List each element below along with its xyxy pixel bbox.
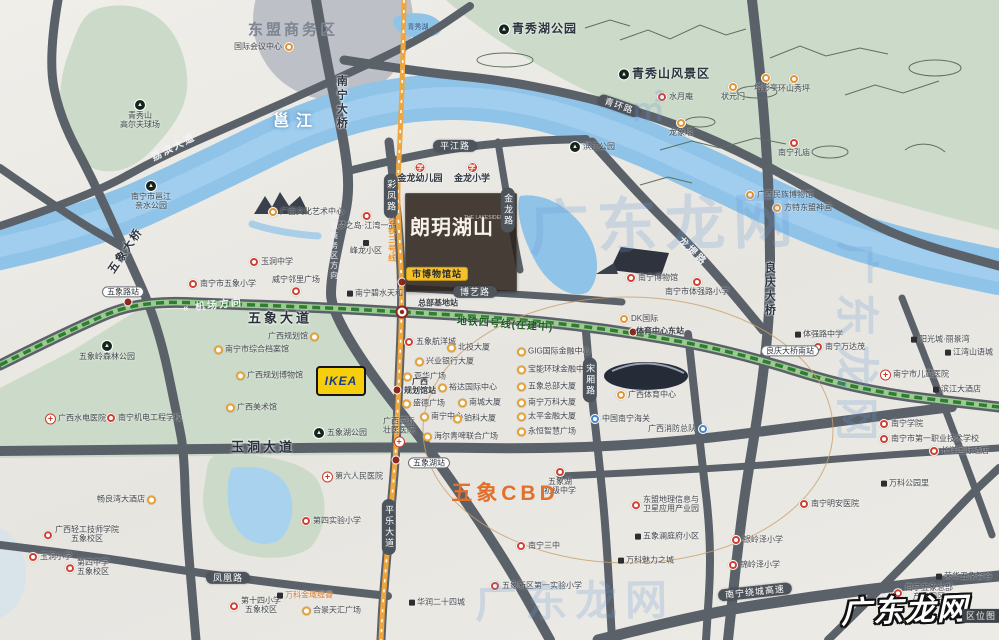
poi-intl-convention-center: 国际会议中心 (234, 42, 294, 52)
poi-label: 广西体育中心 (628, 391, 676, 400)
nanning-bridge-label: 南宁大桥 (335, 75, 348, 131)
poi-orange-icon (676, 118, 686, 128)
brand-logo: 广东龙网 (840, 593, 969, 632)
creek (252, 224, 318, 236)
poi-label: 威宁邻里广场 (272, 276, 320, 285)
poi-red-icon (879, 434, 889, 444)
poi-haier-tsingtao-plaza: 海尔青啤联合广场 (423, 433, 498, 442)
poi-vanke-park-li: 万科公园里 (881, 480, 929, 489)
poi-ring-icon (310, 333, 319, 342)
hospital-cross-icon: + (322, 472, 333, 483)
poi-label: 盛德广场 (413, 400, 445, 409)
poi-label: GIG国际金融中心 (528, 348, 591, 357)
poi-label: 锦岭泽小学 (740, 561, 780, 570)
poi-ring-icon (423, 433, 432, 442)
poi-changliangwan-hotel: 畅良湾大酒店 (97, 496, 156, 505)
wuxiang-road-station-label: 五象路站 (102, 286, 144, 297)
poi-red-icon (631, 500, 641, 510)
poi-jinlingze-primary: 锦岭泽小学 (728, 560, 780, 570)
poi-red-icon (229, 601, 239, 611)
poi-label: 南城大厦 (469, 399, 501, 408)
poi-label: 青秀山风景区 (632, 67, 710, 80)
poi-label: 合景天汇广场 (313, 607, 361, 616)
hospital-cross-icon: + (880, 370, 891, 381)
poi-changyang-intl-hotel: 长洋国际酒店 (929, 446, 989, 456)
poi-label: 状元门 (721, 93, 745, 102)
poi-label: 五象总部大厦 (528, 383, 576, 392)
poi-label: 体强路中学 (803, 331, 843, 340)
liangqing-south-station-label: 良庆大桥南站 (761, 345, 819, 356)
poi-yongheng-wisdom-plaza: 永恒智慧广场 (517, 428, 576, 437)
poi-red-icon (362, 211, 372, 221)
poi-label: 五象澜庭府小区 (643, 533, 699, 542)
poi-red-icon (490, 581, 500, 591)
poi-red-icon (731, 535, 741, 545)
poi-label: 广西规划馆 (268, 333, 308, 342)
poi-label: 南宁市体强路小学 (665, 288, 729, 297)
poi-ring-icon (517, 366, 526, 375)
poi-label: 江湾山语城 (953, 349, 993, 358)
ikea-store: IKEA (316, 366, 366, 396)
poi-label: 畅良湾大酒店 (97, 496, 145, 505)
poi-nanning-mech-engineering-school: 南宁机电工程学校 (106, 413, 182, 423)
poi-no4-middle-school-wuxiang: 第四中学五象校区 (65, 559, 109, 577)
poi-label: 第六人民医院 (335, 473, 383, 482)
poi-red-icon (28, 552, 38, 562)
park-tree-icon: ▲ (618, 68, 630, 80)
poi-label: DK国际 (631, 315, 658, 324)
poi-nanning-no3-middle-school: 南宁三中 (516, 541, 560, 551)
hospital-cross-icon: + (394, 436, 405, 447)
poi-dk-international: DK国际 (619, 314, 658, 324)
poi-label: 滨江大酒店 (941, 386, 981, 395)
poi-wuxiang-lake-park: ▲五象湖公园 (313, 427, 367, 439)
poi-qinxiu-lake-park: ▲青秀湖公园 (498, 22, 577, 35)
poi-wuxiang-lantingfu: 五象澜庭府小区 (635, 533, 699, 542)
poi-red-icon (692, 277, 702, 287)
poi-jinlong-primary-school: 学金龙小学 (454, 162, 490, 184)
poi-gx-light-industry-college: 广西轻工技师学院五象校区 (43, 526, 119, 544)
poi-nanning-wanda-mall: 南宁万达茂 (813, 342, 865, 352)
district-asean-label: 东盟商务区 (248, 21, 338, 38)
poi-ring-icon (420, 413, 429, 422)
asean-direction-label: 东盟商务区方向 (329, 211, 338, 281)
poi-nanning-children-hospital: +南宁市儿童医院 (880, 370, 949, 381)
poi-red-icon (657, 92, 667, 102)
residential-marker-icon (795, 332, 801, 338)
poi-label: 第十四小学五象校区 (241, 597, 281, 615)
poi-label: 万科公园里 (889, 480, 929, 489)
poi-label: 银岭泽小学 (743, 536, 783, 545)
poi-label: 南宁万达茂 (825, 343, 865, 352)
poi-asean-geo-satellite-park: 东盟地理信息与卫星应用产业园 (631, 496, 699, 514)
poi-label: 荣华五象智谷 (944, 573, 992, 582)
poi-red-icon (516, 541, 526, 551)
poi-ring-icon (226, 404, 235, 413)
park-tree-icon: ▲ (498, 23, 510, 35)
poi-red-icon (789, 138, 799, 148)
poi-nanning-museum: 南宁博物馆 (626, 273, 678, 283)
poi-golf-course: ▲青秀山高尔夫球场 (120, 99, 160, 130)
poi-ring-icon (517, 428, 526, 437)
poi-label: 广西水电医院 (58, 415, 106, 424)
poi-wuxiangling-forest-park: ▲五象岭森林公园 (79, 340, 135, 362)
poi-label: 南宁孔庙 (778, 149, 810, 158)
poi-bishui-tianhe: 南宁碧水天和 (347, 290, 403, 299)
poi-hejing-tianhui-plaza: 合景天汇广场 (302, 607, 361, 616)
poi-red-icon (188, 279, 198, 289)
poi-label: 南宁市邕江亲水公园 (131, 193, 171, 211)
poi-ring-icon (302, 607, 311, 616)
poi-label: 广西轻工技师学院五象校区 (55, 526, 119, 544)
poi-fenglong-residence: 峰龙小区 (350, 240, 382, 256)
residential-marker-icon (911, 337, 917, 343)
poi-orange-icon (728, 82, 738, 92)
poi-label: 万科金域缇香 (285, 592, 333, 601)
poi-wuxiang-primary-school: 南宁市五象小学 (188, 279, 256, 289)
poi-label: 南宁市五象小学 (200, 280, 256, 289)
poi-binjiang-hotel: 滨江大酒店 (933, 386, 981, 395)
museum-station-label: 市博物馆站 (406, 267, 468, 281)
poi-label: 青秀湖公园 (512, 22, 577, 35)
residential-marker-icon (347, 291, 353, 297)
poi-orange-icon (789, 74, 799, 84)
poi-red-icon (555, 467, 565, 477)
poi-orange-icon (619, 314, 629, 324)
poi-label: 塔影亭 (754, 84, 778, 93)
poi-label: 龙象塔 (669, 129, 693, 138)
poi-ring-icon (517, 413, 526, 422)
poi-label: 南宁碧水天和 (355, 290, 403, 299)
park-tree-icon: ▲ (101, 340, 113, 352)
poi-gx-art-museum: 广西美术馆 (226, 404, 277, 413)
poi-jinlong-kindergarten: 学金龙幼儿园 (397, 162, 442, 184)
poi-orange-icon (772, 203, 782, 213)
road-tiqiang-road (688, 334, 710, 640)
poi-label: 海尔青啤联合广场 (434, 433, 498, 442)
planning-hall-station-dot (393, 386, 401, 394)
poi-tiqiang-road-middle-school: 体强路中学 (795, 331, 843, 340)
corner-badge: 区位图 (962, 609, 999, 623)
residential-marker-icon (635, 534, 641, 540)
poi-label: 环山秀坪 (778, 85, 810, 94)
poi-label: 广西国际壮医医院 (383, 417, 415, 435)
poi-no14-primary-school-wuxiang: 第十四小学五象校区 (229, 597, 281, 615)
poi-jiangwan-shanyucheng: 江湾山语城 (945, 349, 993, 358)
poi-label: 广西消防总队 (648, 425, 696, 434)
poi-red-icon (626, 273, 636, 283)
poi-label: 金龙小学 (454, 174, 490, 184)
poi-label: 裕达国际中心 (449, 384, 497, 393)
poi-ring-icon (147, 496, 156, 505)
poi-label: 万科魅力之城 (626, 557, 674, 566)
residential-marker-icon (933, 387, 939, 393)
poi-label: 水月庵 (669, 93, 693, 102)
poi-label: 广西民族博物馆 (757, 191, 813, 200)
ikea-logo-text: IKEA (325, 374, 358, 388)
poi-label: 广西美术馆 (237, 404, 277, 413)
poi-red-icon (404, 337, 414, 347)
contour-0 (477, 53, 533, 67)
sports-center-east-station-label: 体育中心东站 (636, 326, 684, 335)
poi-orange-icon (761, 73, 771, 83)
liangqing-bridge-label: 良庆大桥 (763, 262, 776, 318)
poi-ring-icon (236, 372, 245, 381)
hq-base-station-dot-core (400, 310, 404, 314)
poi-longxiang-pagoda: 龙象塔 (669, 118, 693, 138)
poi-nanning-archives: 南宁市综合档案馆 (214, 346, 289, 355)
wuxiang-lake-station-label: 五象湖站 (408, 457, 450, 468)
poi-nanning-customs: 中国南宁海关 (590, 414, 650, 424)
poi-label: 南宁学院 (891, 420, 923, 429)
project-lake (518, 195, 597, 294)
boyi-road-label: 博艺路 (453, 286, 497, 298)
poi-orange-icon (268, 207, 278, 217)
poi-taying-pavilion: 塔影亭 (754, 73, 778, 93)
poi-yongjiang-waterfront-park: ▲南宁市邕江亲水公园 (131, 180, 171, 211)
poi-fantawild-asean: 方特东盟神画 (772, 203, 832, 213)
poi-yuda-intl-center: 裕达国际中心 (438, 384, 497, 393)
hq-base-station-label: 总部基地站 (418, 298, 458, 307)
jinlong-road-label: 金龙路 (501, 188, 515, 233)
poi-gx-ethnic-museum: 广西民族博物馆 (745, 190, 813, 200)
poi-ring-icon (517, 399, 526, 408)
poi-red-icon (106, 413, 116, 423)
poi-label: 阳光城·丽景湾 (919, 336, 970, 345)
poi-label: 中国南宁海关 (602, 415, 650, 424)
poi-nanning-vanke-tower: 南宁万科大厦 (517, 399, 576, 408)
poi-ring-icon (517, 383, 526, 392)
poi-weining-neighborhood-plaza: 威宁邻里广场 (272, 276, 320, 296)
residential-marker-icon (945, 350, 951, 356)
poi-nanning-confucius-temple: 南宁孔庙 (778, 138, 810, 158)
school-icon: 学 (466, 162, 477, 173)
nanning-museum-sketch (610, 247, 669, 276)
poi-ring-icon (458, 399, 467, 408)
songxiang-road-label: 宋厢路 (583, 358, 597, 403)
poi-label: 玉洞中学 (261, 258, 293, 267)
poi-label: 兴业银行大厦 (426, 358, 474, 367)
poi-label: 广西规划博物馆 (247, 372, 303, 381)
poi-red-icon (728, 560, 738, 570)
poi-ronghua-wuxiang-zhigu: 荣华五象智谷 (936, 573, 992, 582)
park-tree-icon: ▲ (569, 141, 581, 153)
poi-first-experimental-primary: 五象新区第一实验小学 (490, 581, 582, 591)
poi-qingxiushan-scenic-area: ▲青秀山风景区 (618, 67, 710, 80)
planning-hall-station-label: 广西规划馆站 (404, 377, 436, 395)
park-tree-icon: ▲ (145, 180, 157, 192)
poi-no4-experimental-primary: 第四实验小学 (301, 516, 361, 526)
fenghuang-road-label: 凤凰路 (206, 572, 250, 584)
poi-red-icon (301, 516, 311, 526)
wuxiang-road-station-dot (124, 298, 132, 306)
poi-label: 滨江公园 (583, 143, 615, 152)
poi-ring-icon (402, 400, 411, 409)
poi-label: 方特东盟神画 (784, 204, 832, 213)
location-map: 朗玥湖山 THE LAKESIDELUXEIKEA国际会议中心▲青秀山高尔夫球场… (0, 0, 999, 640)
metro3-label: 地铁三号线 (387, 218, 396, 263)
poi-label: 太平金融大厦 (528, 413, 576, 422)
poi-blue-icon (590, 414, 600, 424)
poi-label: 东盟地理信息与卫星应用产业园 (643, 496, 699, 514)
cbd-label: 五象CBD (451, 482, 559, 506)
poi-ring-icon (447, 344, 456, 353)
poi-label: 永恒智慧广场 (528, 428, 576, 437)
pingjiang-road-label: 平江路 (433, 140, 477, 152)
poi-label: 金龙幼儿园 (397, 174, 442, 184)
poi-label: 南宁市第一职业技术学校 (891, 435, 979, 444)
poi-label: 国际会议中心 (234, 43, 282, 52)
poi-label: 南宁机电工程学校 (118, 414, 182, 423)
poi-ring-icon (214, 346, 223, 355)
school-icon: 学 (414, 162, 425, 173)
poi-label: 南宁市儿童医院 (893, 371, 949, 380)
poi-nancheng-tower: 南城大厦 (458, 399, 501, 408)
poi-no6-peoples-hospital: +第六人民医院 (322, 472, 383, 483)
poi-label: 南宁明安医院 (811, 500, 859, 509)
poi-vanke-meili-city: 万科魅力之城 (618, 557, 674, 566)
poi-yangguangcheng-lijingwan: 阳光城·丽景湾 (911, 336, 970, 345)
hospital-cross-icon: + (45, 414, 56, 425)
poi-red-icon (879, 419, 889, 429)
poi-gx-planning-hall: 广西规划馆 (268, 333, 319, 342)
poi-label: 第四中学五象校区 (77, 559, 109, 577)
wuxiang-avenue-label: 五象大道 (248, 312, 312, 327)
poi-nanning-university: 南宁学院 (879, 419, 923, 429)
stadium-sketch (604, 362, 688, 390)
poi-blue-icon (698, 424, 708, 434)
poi-shengde-plaza: 盛德广场 (402, 400, 445, 409)
poi-cr-land-24city: 华润二十四城 (409, 599, 465, 608)
poi-label: 青秀山高尔夫球场 (120, 112, 160, 130)
poi-shuiyue-nunnery: 水月庵 (657, 92, 693, 102)
wuxiang-lake-station-dot (392, 456, 400, 464)
poi-yudong-middle-school: 玉洞中学 (249, 257, 293, 267)
poi-yinlingze-primary: 银岭泽小学 (731, 535, 783, 545)
poi-ring-icon (415, 358, 424, 367)
poi-label: 南宁市综合档案馆 (225, 346, 289, 355)
poi-label: 第四实验小学 (313, 517, 361, 526)
residential-marker-icon (936, 574, 942, 580)
poi-first-vocational-school: 南宁市第一职业技术学校 (879, 434, 979, 444)
poi-boke-tower: 铂科大厦 (453, 415, 496, 424)
residential-marker-icon (277, 593, 283, 599)
poi-ring-icon (517, 348, 526, 357)
poi-gx-sports-center: 广西体育中心 (616, 390, 676, 400)
poi-orange-icon (745, 190, 755, 200)
poi-gx-planning-museum: 广西规划博物馆 (236, 372, 303, 381)
poi-label: 南宁三中 (528, 542, 560, 551)
poi-label: 华润二十四城 (417, 599, 465, 608)
poi-label: 五象湖公园 (327, 429, 367, 438)
qinxiu-lake-label: 青秀湖 (408, 24, 429, 32)
poi-label: 长洋国际酒店 (941, 447, 989, 456)
poi-red-icon (43, 530, 53, 540)
poi-red-icon (249, 257, 259, 267)
residential-marker-icon (409, 600, 415, 606)
poi-beitou-tower: 北投大厦 (447, 344, 490, 353)
poi-label: 铂科大厦 (464, 415, 496, 424)
poi-gx-intl-zhuang-hospital: 广西国际壮医医院+ (383, 417, 415, 447)
poi-ring-icon (438, 384, 447, 393)
poi-huanshan-terrace: 环山秀坪 (778, 74, 810, 94)
caifeng-road-label: 彩凤路 (384, 174, 398, 219)
river-yongjiang-label: 邕江 (273, 113, 319, 131)
poi-label: 五象岭森林公园 (79, 353, 135, 362)
poi-red-icon (799, 499, 809, 509)
poi-label: 北投大厦 (458, 344, 490, 353)
poi-wuxiang-hq-tower: 五象总部大厦 (517, 383, 576, 392)
poi-gx-hydro-hospital: +广西水电医院 (45, 414, 106, 425)
poi-red-icon (291, 286, 301, 296)
poi-cib-bank-tower: 兴业银行大厦 (415, 358, 474, 367)
pingle-avenue-label: 平乐大道 (382, 499, 396, 555)
poi-zhuangyuan-gate: 状元门 (721, 82, 745, 102)
poi-vanke-jinyu-tixiang: 万科金域缇香 (277, 592, 333, 601)
poi-label: 峰龙小区 (350, 247, 382, 256)
poi-gx-fire-brigade-hq: 广西消防总队 (648, 424, 708, 434)
poi-baoneng-global-finance-center: 宝能环球金融中心 (517, 366, 592, 375)
poi-label: 南宁博物馆 (638, 274, 678, 283)
park-tree-icon: ▲ (134, 99, 146, 111)
park-tree-icon: ▲ (313, 427, 325, 439)
poi-red-icon (65, 563, 75, 573)
residential-marker-icon (881, 481, 887, 487)
poi-label: 南宁万科大厦 (528, 399, 576, 408)
poi-mingan-hospital: 南宁明安医院 (799, 499, 859, 509)
yudong-avenue-label: 玉洞大道 (231, 441, 295, 456)
poi-orange-icon (616, 390, 626, 400)
poi-ring-icon (453, 415, 462, 424)
poi-label: 五象新区第一实验小学 (502, 582, 582, 591)
poi-gig-intl-finance-center: GIG国际金融中心 (517, 348, 591, 357)
residential-marker-icon (618, 558, 624, 564)
poi-taiping-finance-tower: 太平金融大厦 (517, 413, 576, 422)
poi-orange-icon (284, 42, 294, 52)
poi-red-icon (929, 446, 939, 456)
poi-binjiang-park: ▲滨江公园 (569, 141, 615, 153)
